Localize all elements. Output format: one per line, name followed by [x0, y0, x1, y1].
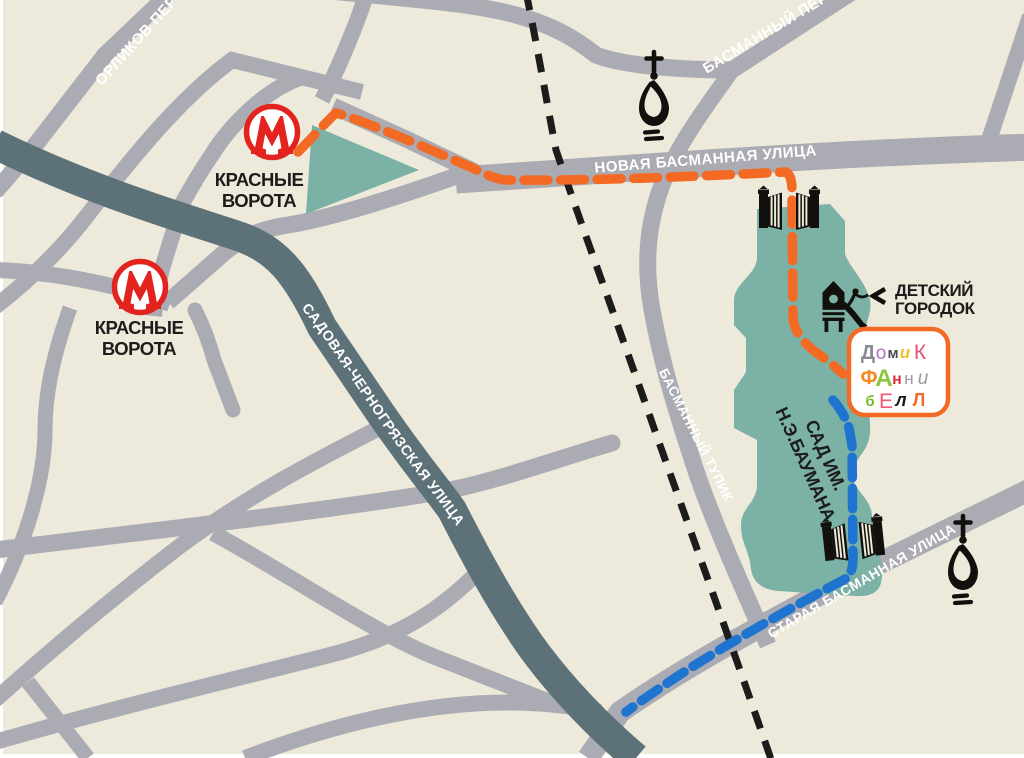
svg-text:КРАСНЫЕ: КРАСНЫЕ — [95, 317, 184, 338]
svg-text:А: А — [875, 365, 892, 392]
svg-text:Е: Е — [879, 390, 893, 413]
svg-text:о: о — [876, 343, 887, 364]
svg-text:ГОРОДОК: ГОРОДОК — [895, 299, 976, 318]
svg-text:и: и — [900, 343, 911, 362]
svg-text:м: м — [887, 345, 898, 362]
svg-text:ВОРОТА: ВОРОТА — [222, 190, 296, 211]
svg-text:ДЕТСКИЙ: ДЕТСКИЙ — [895, 281, 973, 300]
svg-text:н: н — [892, 371, 902, 388]
svg-text:Д: Д — [861, 342, 875, 364]
svg-text:б: б — [865, 393, 874, 410]
svg-text:КРАСНЫЕ: КРАСНЫЕ — [215, 169, 304, 190]
svg-text:и: и — [918, 368, 929, 389]
svg-text:л: л — [894, 390, 906, 410]
svg-text:ВОРОТА: ВОРОТА — [102, 338, 176, 359]
svg-text:н: н — [904, 369, 913, 388]
svg-text:К: К — [914, 341, 927, 364]
svg-text:Л: Л — [913, 390, 926, 410]
